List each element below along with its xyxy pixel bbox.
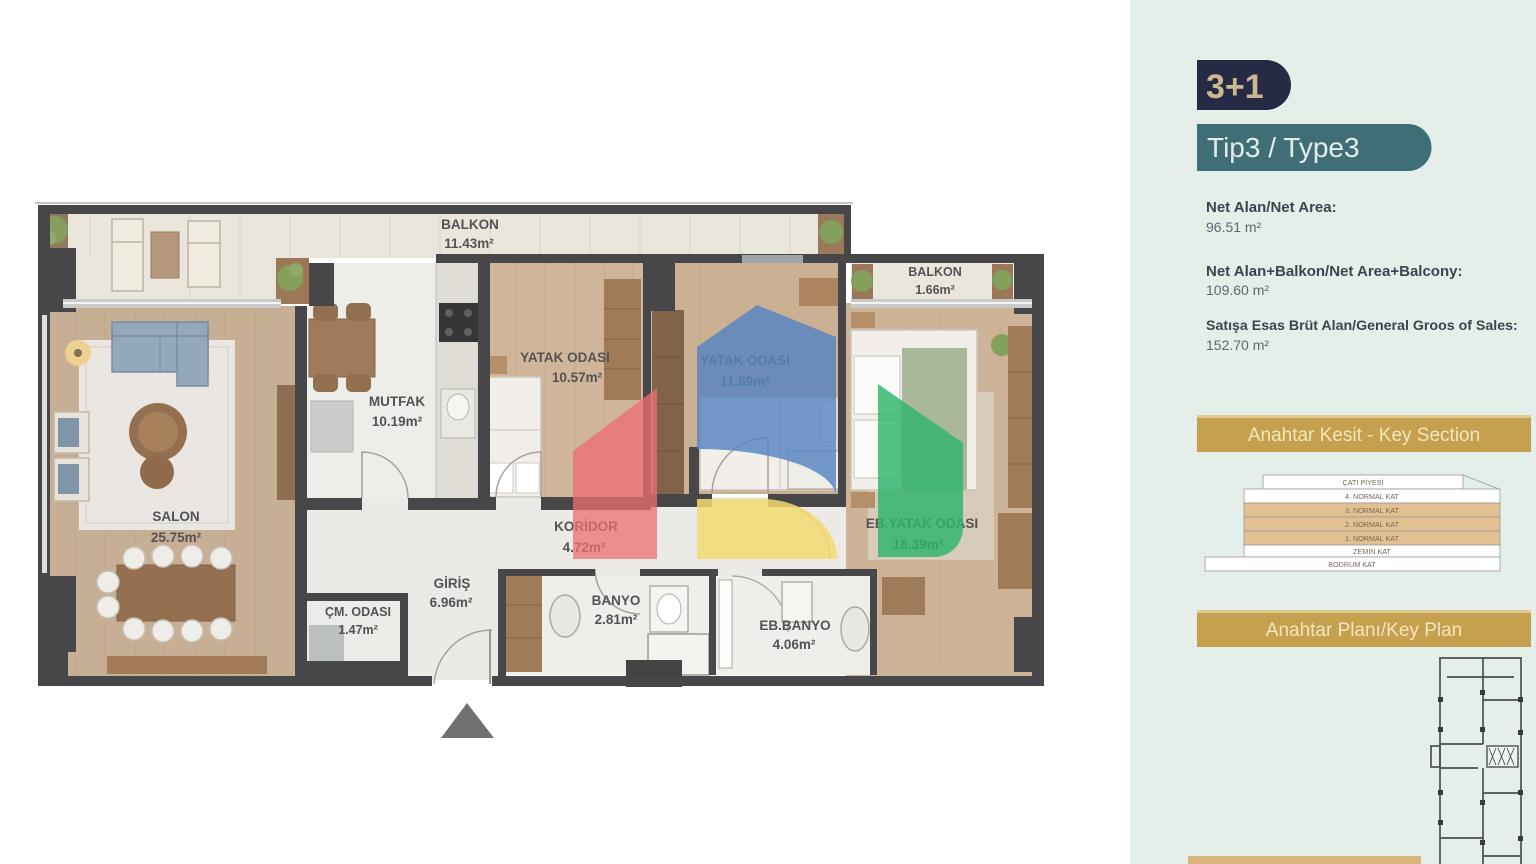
svg-text:96.51 m²: 96.51 m² xyxy=(1206,219,1262,235)
svg-text:ÇATI PİYESİ: ÇATI PİYESİ xyxy=(1342,478,1383,487)
svg-text:3. NORMAL KAT: 3. NORMAL KAT xyxy=(1345,506,1400,515)
svg-text:Anahtar Planı/Key Plan: Anahtar Planı/Key Plan xyxy=(1266,620,1462,641)
svg-text:Net Alan+Balkon/Net Area+Balco: Net Alan+Balkon/Net Area+Balcony: xyxy=(1206,263,1462,280)
svg-text:109.60 m²: 109.60 m² xyxy=(1206,282,1269,298)
svg-text:1. NORMAL KAT: 1. NORMAL KAT xyxy=(1345,534,1400,543)
svg-text:Net Alan/Net Area:: Net Alan/Net Area: xyxy=(1206,199,1337,216)
svg-text:2. NORMAL KAT: 2. NORMAL KAT xyxy=(1345,520,1400,529)
svg-text:Satışa Esas Brüt Alan/General: Satışa Esas Brüt Alan/General Groos of S… xyxy=(1206,318,1518,334)
svg-text:152.70 m²: 152.70 m² xyxy=(1206,337,1269,353)
svg-text:ZEMİN KAT: ZEMİN KAT xyxy=(1353,547,1391,556)
svg-text:Anahtar Kesit - Key Section: Anahtar Kesit - Key Section xyxy=(1248,425,1480,446)
svg-text:Tip3 / Type3: Tip3 / Type3 xyxy=(1207,132,1360,163)
svg-text:BODRUM KAT: BODRUM KAT xyxy=(1328,560,1376,569)
svg-text:3+1: 3+1 xyxy=(1206,68,1264,106)
svg-text:4. NORMAL KAT: 4. NORMAL KAT xyxy=(1345,492,1400,501)
